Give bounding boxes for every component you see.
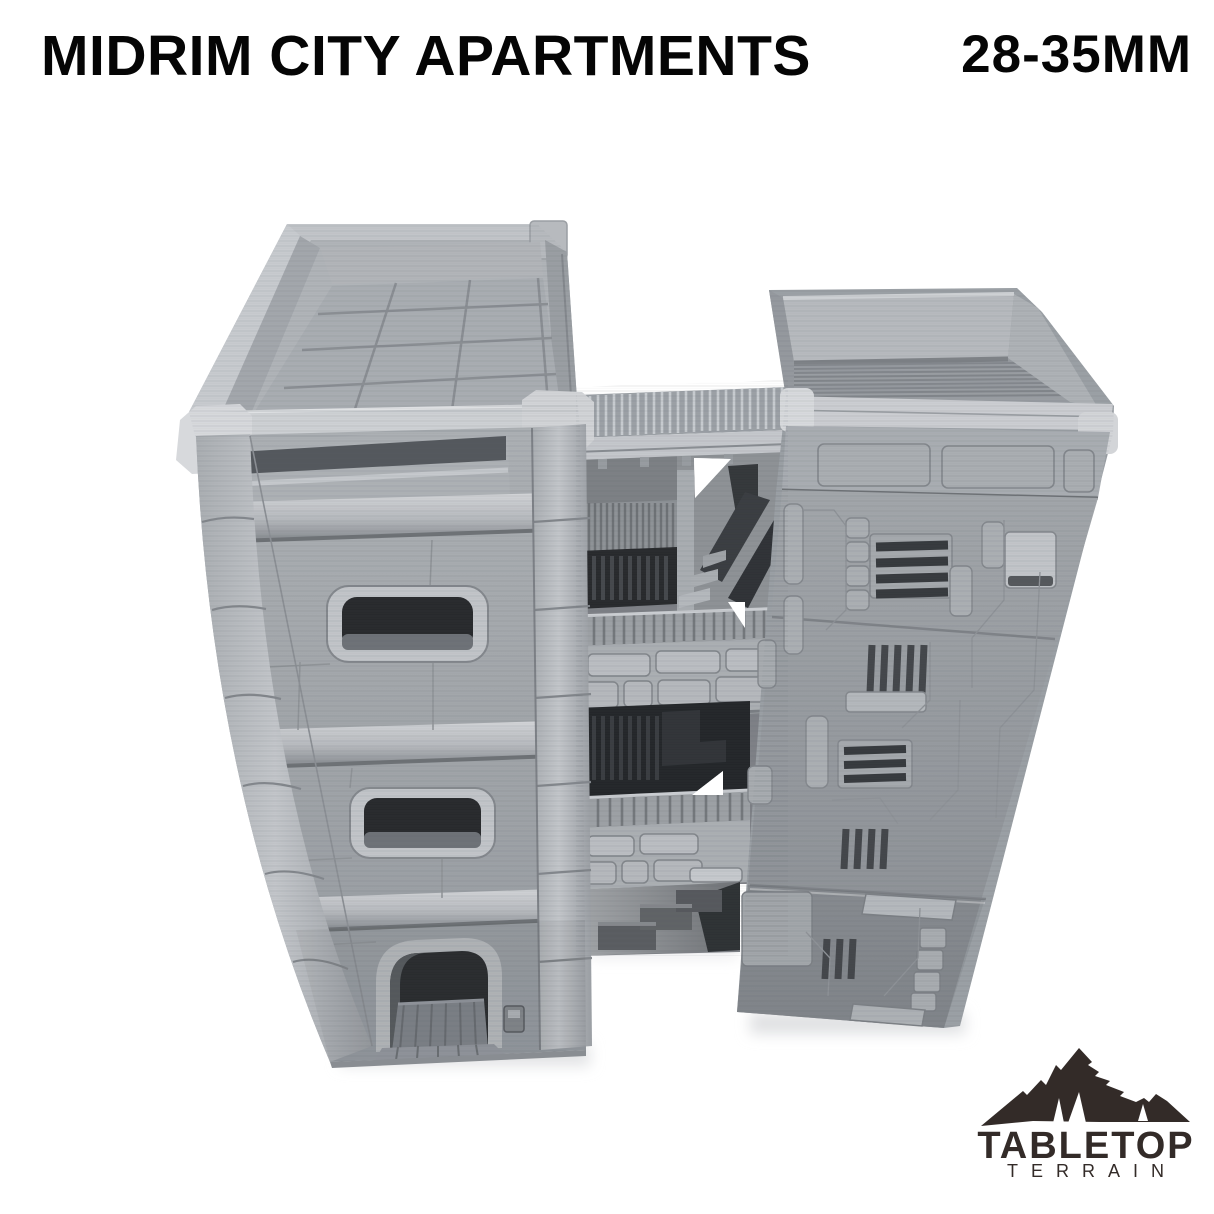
svg-text:TERRAIN: TERRAIN	[1007, 1161, 1177, 1181]
